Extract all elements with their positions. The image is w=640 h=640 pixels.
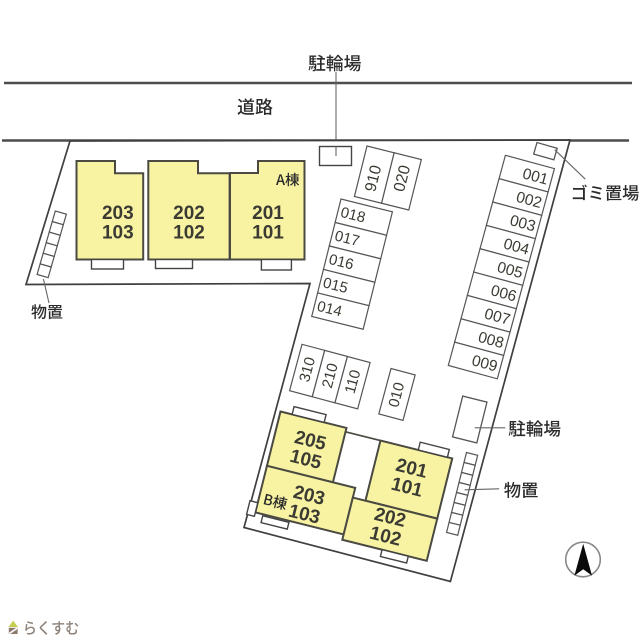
- svg-text:101: 101: [252, 222, 284, 243]
- svg-text:202: 202: [173, 203, 205, 224]
- svg-text:102: 102: [173, 222, 205, 243]
- svg-text:203: 203: [102, 203, 134, 224]
- svg-text:103: 103: [102, 222, 134, 243]
- svg-text:201: 201: [252, 203, 284, 224]
